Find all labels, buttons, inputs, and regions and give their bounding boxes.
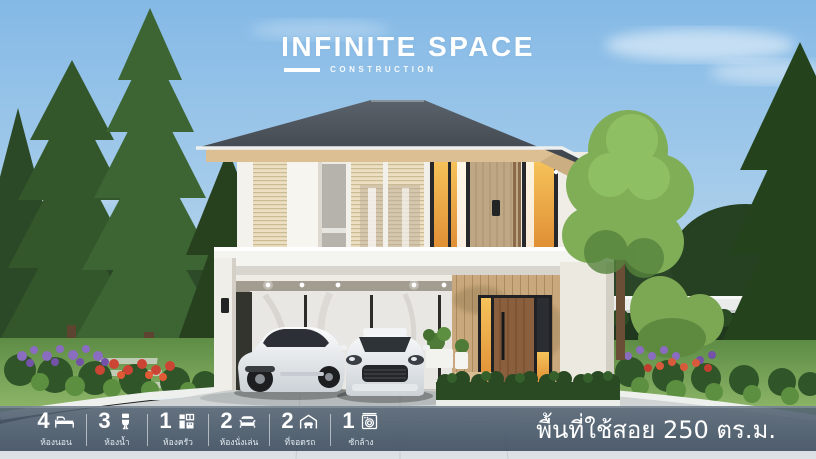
kitchen-count: 1	[159, 410, 171, 432]
spec-laundry: 1 ซักล้าง	[331, 410, 391, 449]
spec-list: 4 ห้องนอน 3 ห้องน้ำ	[0, 408, 391, 451]
roof-soffit	[206, 149, 562, 162]
spec-kitchen: 1 ห้องครัว	[148, 410, 208, 449]
spec-bedrooms: 4 ห้องนอน	[26, 410, 86, 449]
bedroom-label: ห้องนอน	[40, 435, 72, 449]
toilet-icon	[115, 411, 136, 432]
bathroom-count: 3	[98, 410, 110, 432]
house-render	[0, 0, 816, 459]
kitchen-icon	[176, 411, 197, 432]
spec-living-rooms: 2 ห้องนั่งเล่น	[209, 410, 269, 449]
wall-sconce	[492, 200, 500, 216]
kitchen-label: ห้องครัว	[163, 435, 193, 449]
louver-panel	[253, 158, 287, 250]
bed-icon	[54, 411, 75, 432]
usable-area-text: พื้นที่ใช้สอย 250 ตร.ม.	[536, 408, 776, 453]
parking-count: 2	[281, 410, 293, 432]
upper-windows	[430, 154, 558, 254]
poster: INFINITE SPACE CONSTRUCTION 4 ห้องนอน	[0, 0, 816, 459]
washing-machine-icon	[359, 411, 380, 432]
living-room-label: ห้องนั่งเล่น	[220, 435, 259, 449]
column-sconce	[221, 298, 229, 313]
info-bar: 4 ห้องนอน 3 ห้องน้ำ	[0, 406, 816, 451]
bedroom-count: 4	[37, 410, 49, 432]
living-room-count: 2	[220, 410, 232, 432]
parking-label: ที่จอดรถ	[285, 435, 316, 449]
spec-bathrooms: 3 ห้องน้ำ	[87, 410, 147, 449]
laundry-label: ซักล้าง	[348, 435, 373, 449]
laundry-count: 1	[342, 410, 354, 432]
bathroom-label: ห้องน้ำ	[104, 435, 129, 449]
car-garage-icon	[298, 411, 319, 432]
front-hedge	[436, 371, 620, 407]
spec-parking: 2 ที่จอดรถ	[270, 410, 330, 449]
sofa-icon	[237, 411, 258, 432]
